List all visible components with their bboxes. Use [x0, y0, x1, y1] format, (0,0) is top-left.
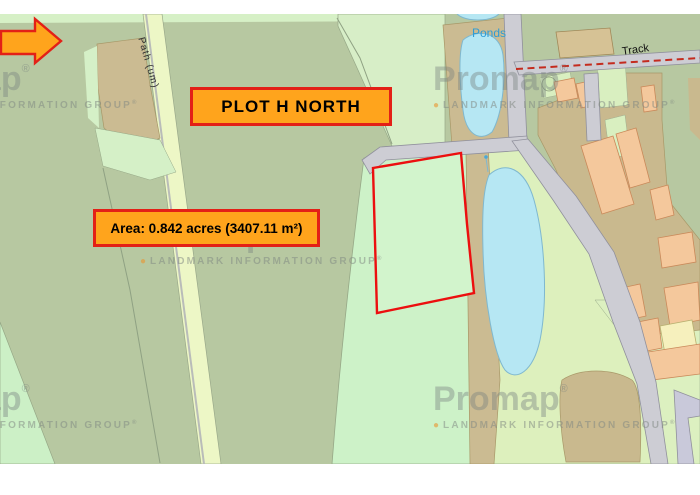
plot-title-box: PLOT H NORTH	[190, 87, 392, 126]
area-callout-text: Area: 0.842 acres (3407.11 m²)	[110, 221, 302, 236]
round-pond-feature	[542, 77, 556, 91]
barn-north-of-track	[556, 28, 614, 58]
area-callout-box: Area: 0.842 acres (3407.11 m²)	[93, 209, 320, 247]
tan-blob-bottom	[560, 371, 641, 462]
farm-lane	[584, 73, 601, 141]
plot-boundary-red	[373, 153, 474, 313]
map-viewport: Promap® ●LANDMARK INFORMATION GROUP® Pro…	[0, 14, 700, 464]
upper-pond	[460, 33, 504, 136]
plot-title-text: PLOT H NORTH	[221, 97, 361, 117]
building	[664, 282, 700, 326]
building	[658, 232, 696, 268]
building	[641, 85, 657, 112]
map-extract-page: Promap® ●LANDMARK INFORMATION GROUP® Pro…	[0, 0, 700, 495]
pond-marker-dot	[484, 155, 488, 159]
building	[554, 78, 578, 102]
area-arrow-icon	[0, 14, 64, 68]
